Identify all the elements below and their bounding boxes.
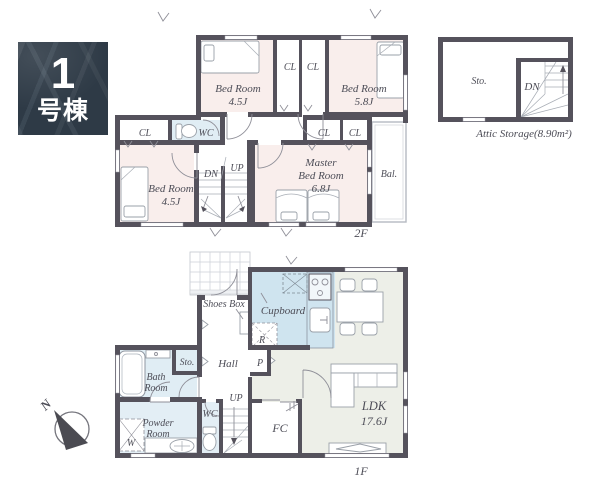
attic-caption: Attic Storage(8.90m²) [475,128,572,140]
refrigerator-label: R [258,335,265,346]
floor-1f-plan: Shoes Box Cupboard R Sto. Hall P Bath Ro… [115,252,408,478]
floor-1f-caption: 1F [354,464,368,478]
bedroom-top-left-size: 4.5J [229,96,249,108]
closet-right-2-label: CL [349,128,362,139]
bedroom-top-left-label: Bed Room [215,83,261,95]
compass: N [36,396,89,450]
bedroom-bottom-left-label: Bed Room [148,183,194,195]
powder-room-label-2: Room [145,429,169,440]
bath-room-label-2: Room [143,383,167,394]
floor-2f-caption: 2F [354,226,368,240]
balcony-label: Bal. [381,169,397,180]
attic-storage-label: Sto. [471,76,486,87]
pantry-label: P [256,358,263,369]
cupboard-label: Cupboard [261,305,306,317]
master-bedroom-size: 6.8J [312,183,332,195]
closet-top-2-label: CL [307,62,320,73]
powder-room-label-1: Powder [141,418,173,429]
floor-plan-drawing: Bed Room 4.5J Bed Room 5.8J Bed Room 4.5… [0,0,600,490]
bath-room-label-1: Bath [147,372,166,383]
stairs-down-2f-label: DN [203,169,219,180]
stairs-up-2f-label: UP [230,163,243,174]
bedroom-bottom-left-size: 4.5J [162,196,182,208]
bedroom-top-right-size: 5.8J [355,96,375,108]
stairs-up-1f-label: UP [229,393,242,404]
shoes-box-label: Shoes Box [203,299,245,310]
attic-stairs-down-label: DN [523,81,540,93]
compass-north-label: N [36,396,54,414]
wc-1f-label: WC [203,409,218,420]
ldk-label: LDK [361,399,387,413]
floor-2f-plan: Bed Room 4.5J Bed Room 5.8J Bed Room 4.5… [115,35,408,240]
closet-right-1-label: CL [318,128,331,139]
floor-plan-page: 1 号棟 [0,0,600,490]
washbasin [145,438,197,453]
kitchen-counter [307,272,333,348]
hall-label: Hall [217,358,238,370]
master-bedroom-label-1: Master [304,157,337,169]
closet-left-label: CL [139,128,152,139]
master-bedroom-label-2: Bed Room [298,170,344,182]
bedroom-top-right-label: Bed Room [341,83,387,95]
closet-top-1-label: CL [284,62,297,73]
wc-2f-label: WC [199,128,214,139]
toilet-1f [203,427,216,451]
tv-stand [329,443,386,454]
entrance-porch [190,252,250,295]
ldk-size: 17.6J [361,414,388,428]
family-closet-label: FC [271,421,288,435]
storage-1f-label: Sto. [180,358,195,368]
toilet-2f [176,124,197,139]
attic-plan: Sto. DN Attic Storage(8.90m²) [438,37,573,140]
